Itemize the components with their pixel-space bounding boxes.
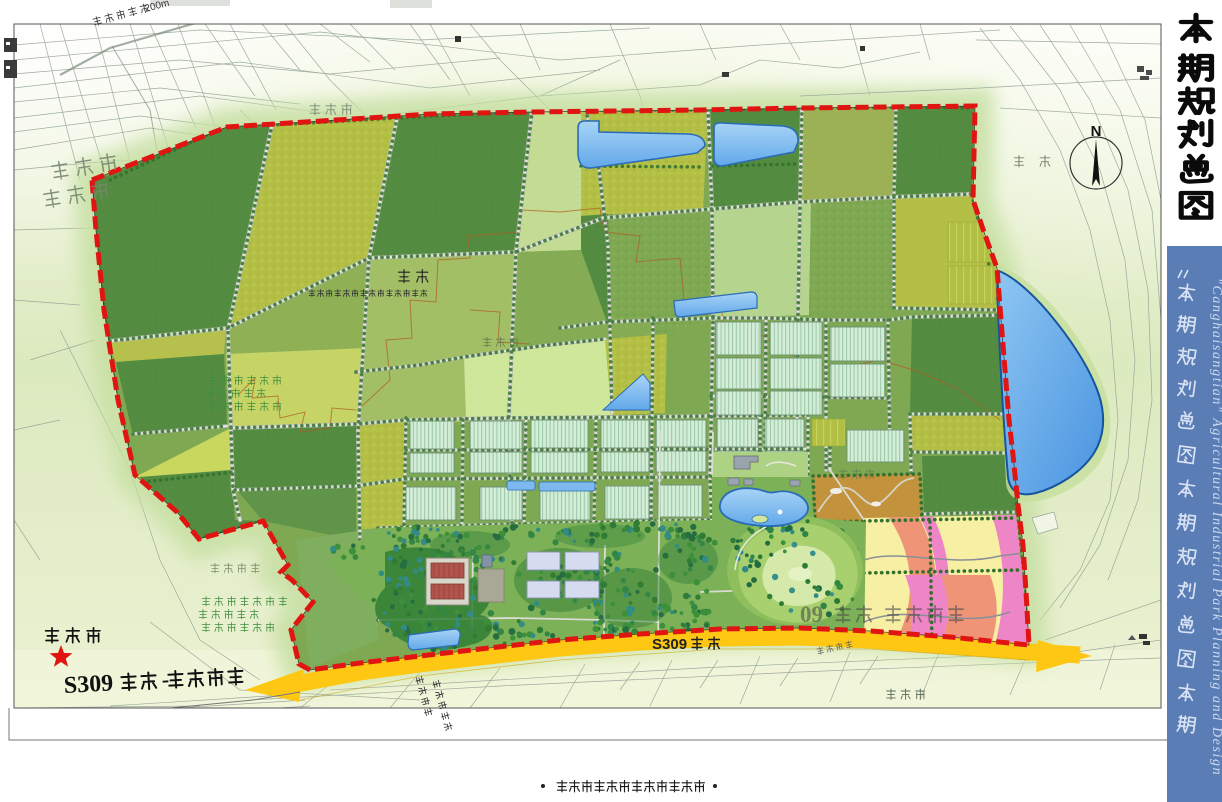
svg-text:-: -: [161, 667, 170, 692]
svg-text:S309: S309: [63, 670, 114, 699]
svg-text:N: N: [1091, 123, 1102, 140]
svg-text:09: 09: [800, 602, 823, 627]
svg-text:"Canghaisangtian" Agricultural: "Canghaisangtian" Agricultural Industria…: [1209, 278, 1222, 776]
svg-text:S309: S309: [652, 636, 687, 653]
